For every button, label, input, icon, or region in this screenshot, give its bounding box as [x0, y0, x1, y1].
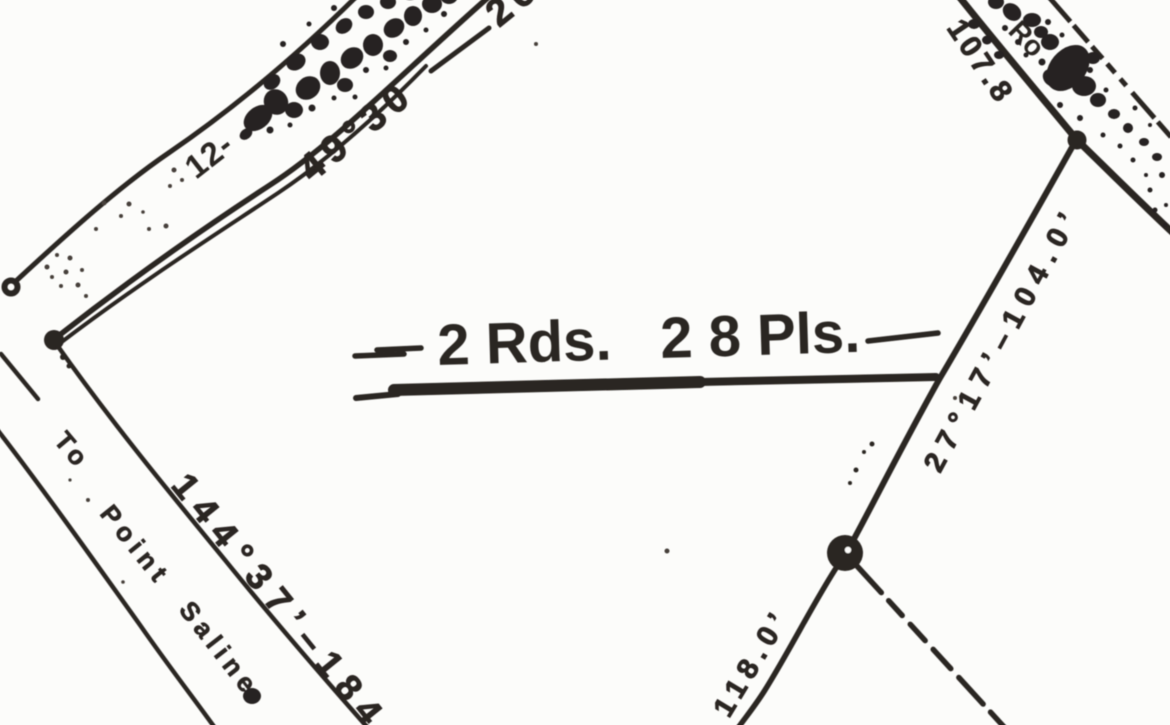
svg-text:2 Rds.: 2 Rds. [436, 308, 612, 378]
svg-text:2 8 Pls.: 2 8 Pls. [659, 300, 861, 371]
